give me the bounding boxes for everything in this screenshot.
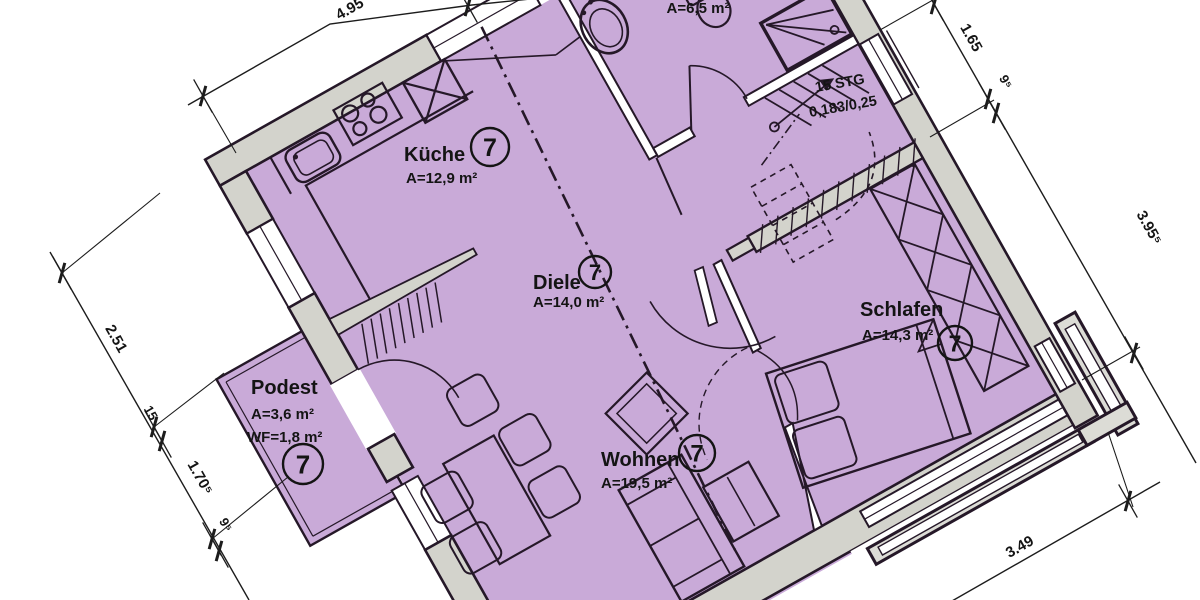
svg-text:A=14,0 m²: A=14,0 m² [533, 294, 604, 311]
svg-text:A=6,5 m²: A=6,5 m² [667, 0, 730, 17]
svg-text:7: 7 [296, 449, 310, 479]
svg-text:WF=1,8 m²: WF=1,8 m² [247, 429, 322, 446]
svg-text:7: 7 [690, 441, 703, 468]
svg-text:7: 7 [949, 330, 962, 356]
svg-text:Küche: Küche [404, 144, 465, 166]
svg-text:A=3,6 m²: A=3,6 m² [251, 406, 314, 423]
svg-text:A=19,5 m²: A=19,5 m² [601, 475, 672, 492]
svg-text:A=12,9 m²: A=12,9 m² [406, 170, 477, 187]
svg-text:Schlafen: Schlafen [860, 299, 943, 321]
svg-text:Wohnen: Wohnen [601, 449, 680, 471]
svg-text:Podest: Podest [251, 377, 318, 399]
svg-text:Diele: Diele [533, 272, 581, 294]
svg-text:7: 7 [589, 260, 601, 285]
svg-text:A=14,3 m²: A=14,3 m² [862, 327, 933, 344]
svg-text:7: 7 [483, 134, 497, 162]
